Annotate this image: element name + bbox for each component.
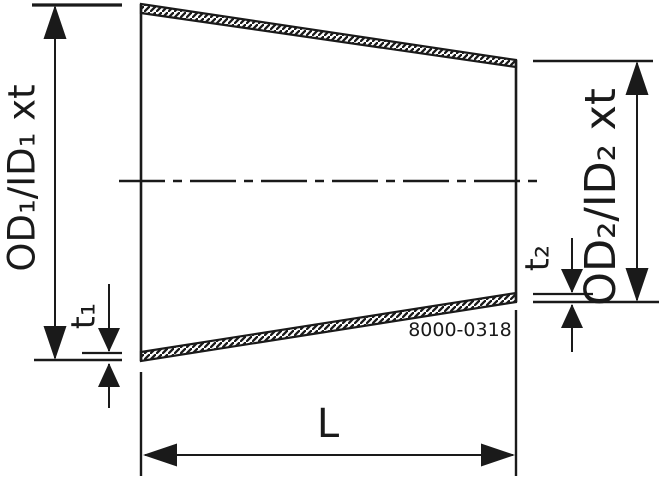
- t2-label: t₂: [518, 245, 557, 271]
- reducer-technical-drawing: OD₁/ID₁ xt t₁ OD₂/ID₂ xt t₂: [0, 0, 659, 477]
- od1-label: OD₁/ID₁ xt: [1, 84, 44, 271]
- od2-arrow-up: [626, 61, 649, 95]
- t2-arrow-up: [561, 304, 583, 328]
- drawing-canvas: OD₁/ID₁ xt t₁ OD₂/ID₂ xt t₂: [0, 0, 659, 477]
- od1-dimension: OD₁/ID₁ xt: [1, 5, 123, 360]
- od2-arrow-down: [626, 268, 649, 302]
- length-label: L: [317, 401, 340, 447]
- t1-dimension: t₁: [64, 284, 123, 408]
- t1-label: t₁: [64, 303, 103, 329]
- od1-arrow-down: [44, 326, 67, 360]
- drawing-number: 8000-0318: [408, 319, 512, 341]
- od2-label: OD₂/ID₂ xt: [576, 88, 626, 306]
- t1-arrow-down: [98, 328, 120, 352]
- length-arrow-left: [143, 444, 177, 467]
- t1-arrow-up: [98, 363, 120, 387]
- od1-arrow-up: [44, 5, 67, 39]
- length-arrow-right: [481, 444, 515, 467]
- top-wall-section: [141, 4, 516, 67]
- reducer-body: [119, 4, 538, 361]
